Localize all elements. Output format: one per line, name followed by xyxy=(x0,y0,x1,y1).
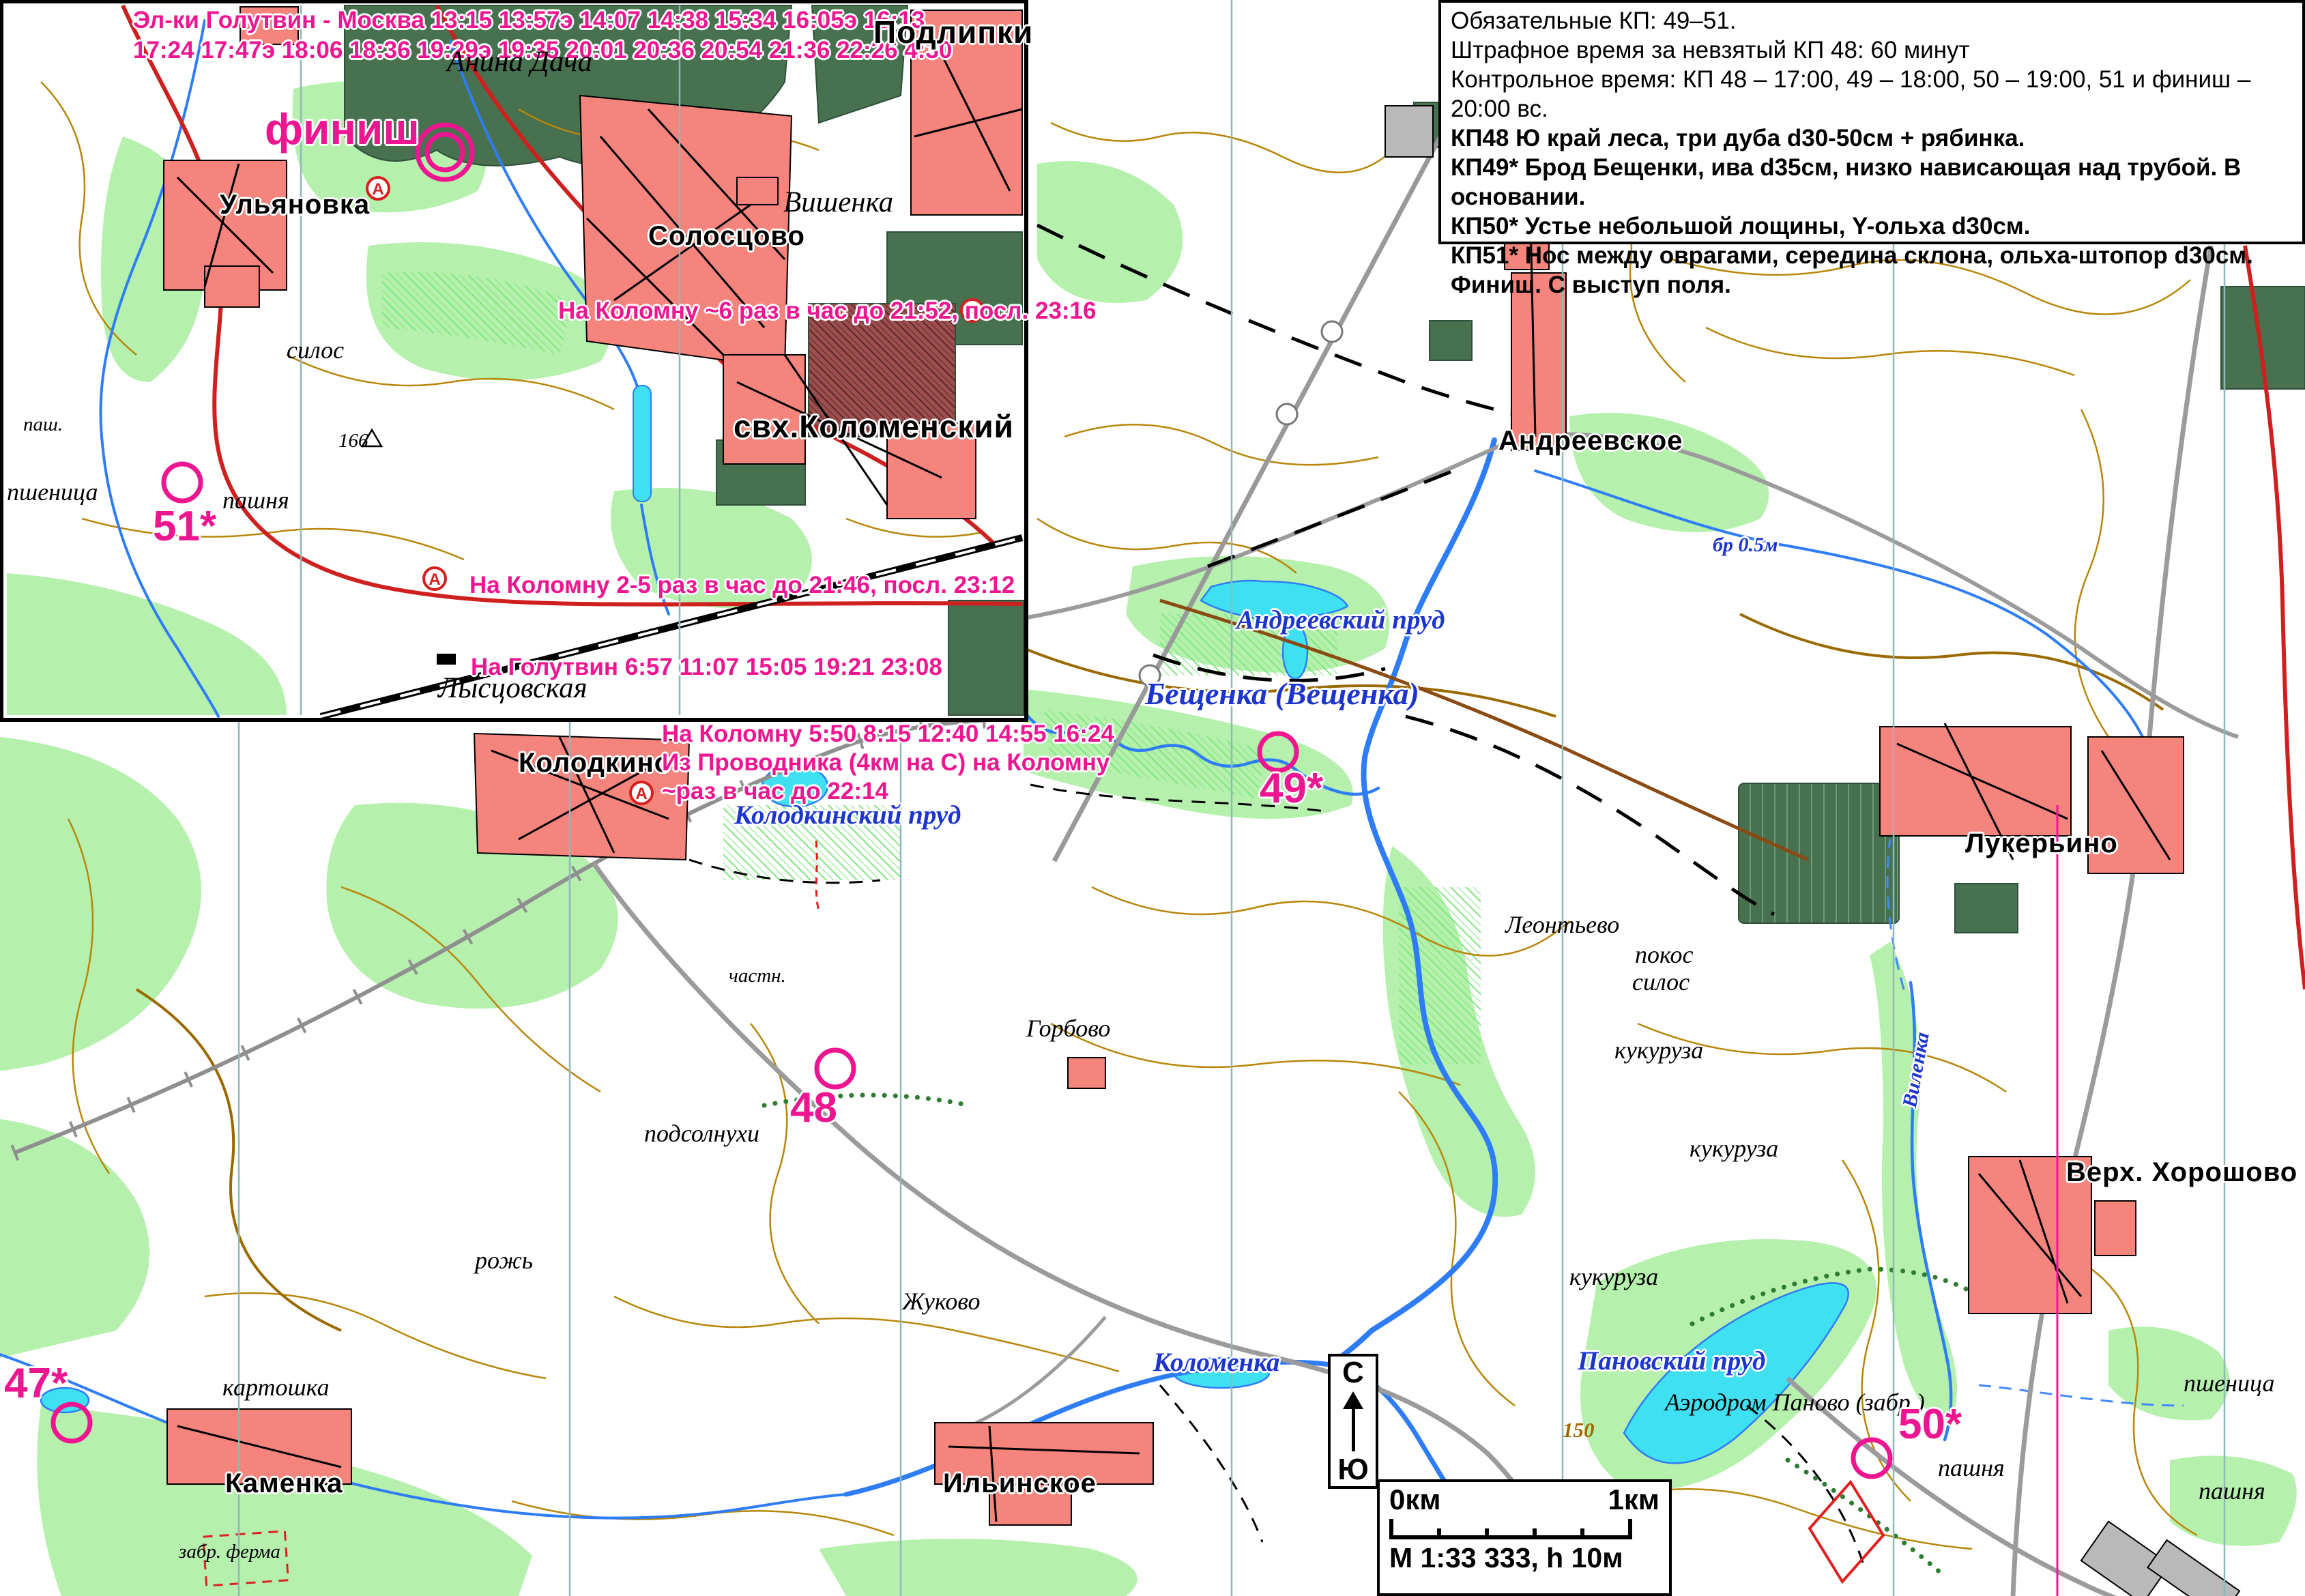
south-label: Ю xyxy=(1337,1455,1368,1485)
hamlet-gorbovo xyxy=(1068,1058,1105,1088)
north-arrow-box: С Ю xyxy=(1328,1354,1378,1489)
bus-stop-letter: А xyxy=(429,570,440,589)
inset-station xyxy=(437,654,456,665)
inset-farm-complex xyxy=(809,304,955,437)
kolodkinsky-pond xyxy=(762,766,828,807)
legend-line-kp51: КП51* Нос между оврагами, середина склон… xyxy=(1451,241,2302,270)
bus-stop-letter: А xyxy=(372,180,383,199)
legend-line: Контрольное время: КП 48 – 17:00, 49 – 1… xyxy=(1451,65,2302,124)
legend-line-kp49: КП49* Брод Бещенки, ива d35см, низко нав… xyxy=(1451,153,2302,212)
bus-stop-letter: А xyxy=(966,302,978,321)
inset-pond xyxy=(633,386,651,502)
north-label: С xyxy=(1342,1358,1364,1388)
legend-line-kp50: КП50* Устье небольшой лощины, Y-ольха d3… xyxy=(1451,212,2302,241)
legend-line: Обязательные КП: 49–51. xyxy=(1451,6,2302,35)
scale-bar xyxy=(1389,1518,1632,1539)
town-kolodkino xyxy=(474,734,689,860)
scale-one-km-label: 1км xyxy=(1608,1483,1659,1516)
north-arrow-icon xyxy=(1343,1391,1363,1451)
inset-anina-dacha xyxy=(240,7,298,44)
scale-caption: М 1:33 333, h 10м xyxy=(1389,1542,1659,1574)
orienteering-map-page: АААА Эл-ки Голутвин - Москва 13:15 13:57… xyxy=(0,0,2305,1596)
scale-zero-label: 0км xyxy=(1389,1483,1440,1516)
legend-box: Обязательные КП: 49–51. Штрафное время з… xyxy=(1438,0,2305,244)
town-lukerino xyxy=(1880,727,2071,836)
legend-line: Штрафное время за невзятый КП 48: 60 мин… xyxy=(1451,35,2302,65)
legend-line-kp48: КП48 Ю край леса, три дуба d30-50см + ря… xyxy=(1451,124,2302,153)
legend-line-finish: Финиш. С выступ поля. xyxy=(1451,270,2302,300)
scale-bar-box: 0км 1км М 1:33 333, h 10м xyxy=(1377,1479,1672,1596)
cemetery-area xyxy=(1430,321,1472,360)
bus-stop-letter: А xyxy=(635,785,647,803)
